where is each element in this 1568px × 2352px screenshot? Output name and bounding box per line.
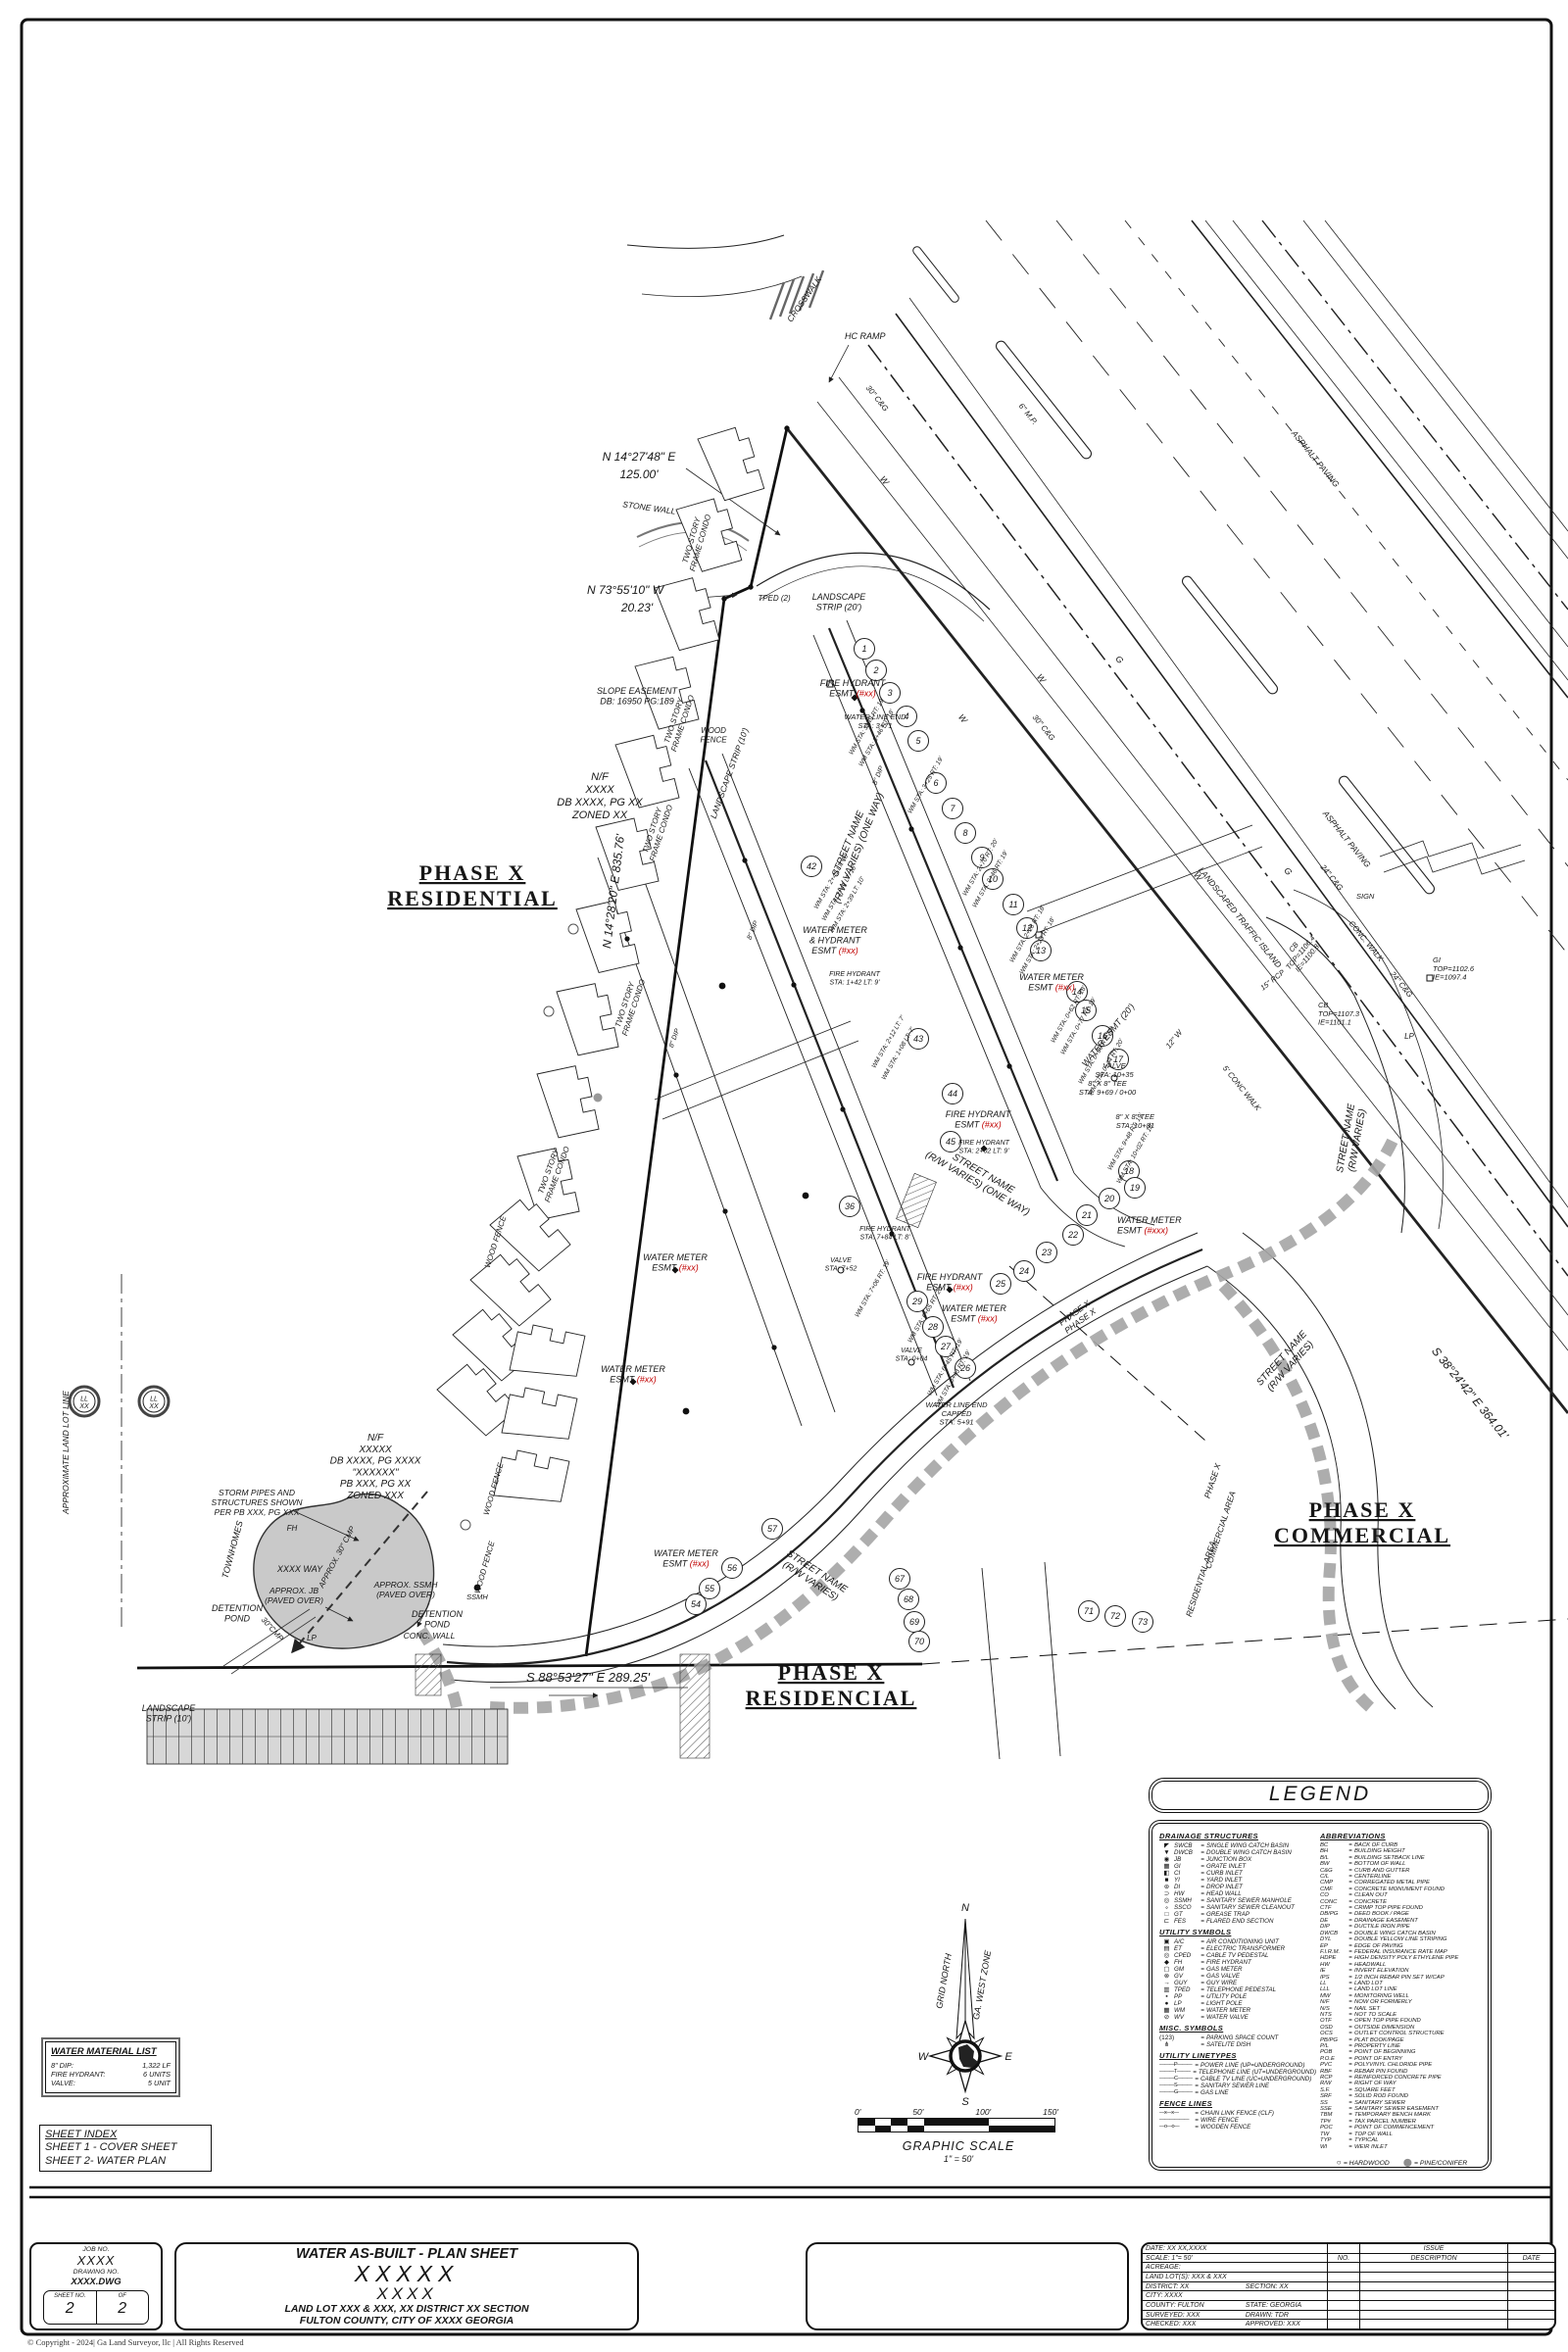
titleblock-main: WATER AS-BUILT - PLAN SHEET XXXXX XXXX L… [174, 2242, 639, 2330]
sheet-no-label: SHEET NO. [44, 2292, 96, 2300]
tree-symbol: ⬤ [1403, 2158, 1414, 2167]
legend-section-fences: FENCE LINES [1159, 2099, 1316, 2108]
legend-symbol: ▤ [1159, 1945, 1174, 1952]
legend-symbol: ◧ [1159, 1870, 1174, 1877]
svg-text:LLXX: LLXX [78, 1396, 89, 1411]
sheet-index-line: SHEET 2- WATER PLAN [45, 2155, 206, 2169]
lot-number: 67 [890, 1569, 910, 1590]
issue-no-cell [1328, 2263, 1359, 2273]
legend-equals: = [1199, 2041, 1206, 2048]
legend-equals: = [1199, 1986, 1206, 1993]
plan-annotation: RESIDENTIAL AREA [1184, 1540, 1218, 1618]
plan-annotation: SIGN [1356, 892, 1375, 901]
issue-date-cell [1508, 2291, 1554, 2301]
legend-fence-row: ——————=WIRE FENCE [1159, 2117, 1316, 2124]
svg-text:3: 3 [887, 688, 892, 698]
legend-desc: YARD INLET [1206, 1877, 1316, 1884]
plan-annotation: FIRE HYDRANTSTA: 7+84 LT: 8' [859, 1226, 910, 1241]
svg-text:20: 20 [1103, 1194, 1114, 1203]
issue-no-cell [1328, 2273, 1359, 2282]
building-footprint [557, 982, 618, 1057]
svg-text:57: 57 [767, 1524, 778, 1534]
legend-desc: GAS VALVE [1206, 1973, 1316, 1980]
issue-desc-cell: ISSUE [1360, 2244, 1507, 2254]
legend-fence-glyph: —————— [1159, 2117, 1193, 2124]
legend-abbreviation-row: WI=WEIR INLET [1320, 2144, 1484, 2150]
legend-abbreviations-column: ABBREVIATIONS BC=BACK OF CURBBH=BUILDING… [1316, 1829, 1484, 2165]
legend-linetype-row: ———T———=TELEPHONE LINE (UT=UNDERGROUND) [1159, 2069, 1316, 2076]
plan-annotation: 8" DIP [668, 1028, 682, 1049]
water-material-list: WATER MATERIAL LIST 8" DIP:1,322 LFFIRE … [41, 2037, 180, 2097]
legend-linetype-glyph: ———C——— [1159, 2076, 1193, 2082]
info-label: ACREAGE: [1146, 2264, 1181, 2271]
svg-text:24: 24 [1018, 1266, 1029, 1276]
legend-fence-row: —x—x—=CHAIN LINK FENCE (CLF) [1159, 2110, 1316, 2117]
scale-tick-150: 150' [1043, 2107, 1058, 2117]
legend-desc: WATER VALVE [1206, 2014, 1316, 2021]
material-name: VALVE: [51, 2079, 75, 2087]
legend-fence-glyph: —x—x— [1159, 2110, 1193, 2117]
land-lot-markers-layer: LLXXLLXX [70, 1387, 169, 1416]
bottom-rules [29, 2187, 1551, 2197]
legend-equals: = [1199, 1849, 1206, 1856]
legend-section-linetypes: UTILITY LINETYPES [1159, 2051, 1316, 2060]
sheet-index: SHEET INDEX SHEET 1 - COVER SHEETSHEET 2… [39, 2125, 212, 2172]
issue-no-cell [1328, 2244, 1359, 2254]
issue-desc-cell [1360, 2291, 1507, 2301]
building-footprint [698, 424, 764, 503]
svg-text:23: 23 [1041, 1248, 1052, 1257]
legend-desc: HEAD WALL [1206, 1890, 1316, 1897]
scale-tick-50: 50' [912, 2107, 923, 2117]
plan-annotation: 12" W [1164, 1027, 1185, 1051]
plan-annotation: CONC. WALK [1347, 919, 1386, 963]
legend-misc-row: ⋔=SATELITE DISH [1159, 2041, 1316, 2048]
legend-desc: TELEPHONE LINE (UT=UNDERGROUND) [1199, 2069, 1316, 2076]
lot-number: 70 [909, 1632, 930, 1652]
tree-symbol: ○ [1337, 2158, 1344, 2167]
legend-equals: = [1199, 1863, 1206, 1870]
legend-section-drainage: DRAINAGE STRUCTURES [1159, 1832, 1316, 1840]
water-material-row: VALVE:5 UNIT [51, 2079, 171, 2087]
issue-date-cell [1508, 2273, 1554, 2282]
legend-abbr: LP [1174, 2000, 1199, 2007]
legend-utility-row: ⊗GV=GAS VALVE [1159, 1973, 1316, 1980]
plan-annotation: LANDSCAPESTRIP (10') [142, 1703, 197, 1724]
plan-annotation: G [1282, 865, 1294, 877]
legend-equals: = [1199, 1897, 1206, 1904]
legend-desc: UTILITY POLE [1206, 1993, 1316, 2000]
legend-abbr: SSMH [1174, 1897, 1199, 1904]
scale-tick-100: 100' [975, 2107, 991, 2117]
legend-equals: = [1199, 1904, 1206, 1911]
material-qty: 5 UNIT [148, 2079, 171, 2087]
building-footprint [655, 575, 719, 653]
svg-text:45: 45 [946, 1137, 956, 1147]
svg-text:22: 22 [1067, 1230, 1078, 1240]
issue-no-cell [1328, 2282, 1359, 2292]
plan-annotation: STORM PIPES ANDSTRUCTURES SHOWNPER PB XX… [211, 1488, 303, 1517]
lot-number: 7 [943, 799, 963, 819]
issue-no-cell [1328, 2311, 1359, 2321]
drawing-no-label: DRAWING NO. [31, 2269, 161, 2277]
legend-symbol: ◆ [1159, 1959, 1174, 1966]
legend-equals: = [1199, 1870, 1206, 1877]
water-material-row: FIRE HYDRANT:6 UNITS [51, 2070, 171, 2079]
lot-number: 24 [1014, 1261, 1035, 1282]
lot-number: 1 [855, 639, 875, 660]
legend-desc: ELECTRIC TRANSFORMER [1206, 1945, 1316, 1952]
plan-annotation: 30" C&G [864, 383, 891, 413]
legend-equals: = [1199, 1993, 1206, 2000]
plan-annotation: 8" DIP [747, 920, 760, 941]
legend-abbr: CI [1174, 1870, 1199, 1877]
legend-equals: = [1199, 1842, 1206, 1849]
graphic-scale-title: GRAPHIC SCALE [855, 2139, 1062, 2153]
legend-linetype-row: ———C———=CABLE TV LINE (UC=UNDERGROUND) [1159, 2076, 1316, 2082]
legend-equals: = [1199, 1966, 1206, 1973]
legend-desc: CABLE TV PEDESTAL [1206, 1952, 1316, 1959]
info-label-2: DRAWN: TDR [1246, 2312, 1289, 2319]
info-row: DATE: XX XX,XXXX [1143, 2244, 1327, 2254]
legend-drainage-row: ◎SSMH=SANITARY SEWER MANHOLE [1159, 1897, 1316, 1904]
location-line-1: LAND LOT XXX & XXX, XX DISTRICT XX SECTI… [176, 2303, 637, 2315]
plan-annotation: FH [287, 1524, 298, 1533]
plan-annotation: ASPHALT PAVING [1289, 427, 1342, 489]
legend-utility-row: ▥TPED=TELEPHONE PEDESTAL [1159, 1986, 1316, 1993]
graphic-scale-bar [857, 2118, 1055, 2132]
svg-text:29: 29 [911, 1297, 922, 1306]
legend-equals: = [1193, 2124, 1200, 2131]
svg-text:1: 1 [861, 644, 866, 654]
land-lot-marker: LLXX [139, 1387, 169, 1416]
lot-number: 44 [943, 1084, 963, 1104]
legend-symbol: ⊛ [1159, 1884, 1174, 1890]
lot-number: 25 [991, 1274, 1011, 1295]
legend-equals: = [1193, 2110, 1200, 2117]
legend-equals: = [1199, 1884, 1206, 1890]
phase-label: PHASE XRESIDENCIAL [746, 1660, 917, 1710]
legend-equals: = [1199, 2000, 1206, 2007]
svg-text:56: 56 [727, 1563, 737, 1573]
legend-equals: = [1347, 2144, 1354, 2150]
property-boundary [122, 426, 1568, 1668]
material-qty: 1,322 LF [142, 2061, 171, 2070]
plan-annotation: 8" DIP [872, 765, 886, 786]
north-letter-e: E [1004, 2051, 1012, 2063]
svg-text:67: 67 [895, 1574, 906, 1584]
legend-desc: GRATE INLET [1206, 1863, 1316, 1870]
building-footprint [537, 1064, 599, 1140]
svg-text:21: 21 [1081, 1210, 1092, 1220]
legend-equals: = [1199, 2007, 1206, 2014]
legend-utility-row: ⊘WV=WATER VALVE [1159, 2014, 1316, 2021]
legend-symbol: ◎ [1159, 1897, 1174, 1904]
lot-number: 42 [802, 857, 822, 877]
info-label-2: STATE: GEORGIA [1246, 2302, 1301, 2309]
legend: LEGEND DRAINAGE STRUCTURES ◤SWCB=SINGLE … [1149, 1778, 1492, 2176]
legend-equals: = [1193, 2089, 1200, 2096]
issue-desc-cell: DESCRIPTION [1360, 2254, 1507, 2264]
legend-utility-row: ◎CPED=CABLE TV PEDESTAL [1159, 1952, 1316, 1959]
svg-text:27: 27 [940, 1342, 952, 1351]
legend-equals: = [1199, 1911, 1206, 1918]
plan-annotation: VALVESTA: 7+52 [825, 1257, 857, 1272]
svg-text:11: 11 [1008, 900, 1017, 909]
legend-utility-row: ▤ET=ELECTRIC TRANSFORMER [1159, 1945, 1316, 1952]
plan-annotation: WATER METERESMT (#xx) [601, 1364, 665, 1385]
plan-annotation: 15" RCP [1258, 968, 1286, 993]
titleblock-job: JOB NO. XXXX DRAWING NO. XXXX.DWG SHEET … [29, 2242, 163, 2330]
legend-fence-row: —o—o—=WOODEN FENCE [1159, 2124, 1316, 2131]
legend-utility-row: ●LP=LIGHT POLE [1159, 2000, 1316, 2007]
tree-label: = PINE/CONIFER [1414, 2160, 1467, 2167]
svg-text:73: 73 [1138, 1617, 1148, 1627]
lot-number: 55 [700, 1579, 720, 1599]
north-letter-w: W [918, 2051, 930, 2063]
plan-annotation: APPROX. SSMH(PAVED OVER) [373, 1580, 439, 1599]
plan-annotation: N/FXXXXXDB XXXX, PG XXXX"XXXXXX"PB XXX, … [330, 1433, 421, 1501]
annotations-layer: N 14°27'48" E125.00'N 73°55'10" W20.23'N… [61, 274, 1512, 1724]
legend-symbol: ▼ [1159, 1849, 1174, 1856]
legend-abbr: WV [1174, 2014, 1199, 2021]
plan-annotation: STONE WALL [622, 499, 677, 516]
lot-number: 68 [899, 1590, 919, 1610]
svg-text:42: 42 [807, 861, 816, 871]
plan-annotation: WATER METERESMT (#xx) [942, 1303, 1006, 1324]
issue-date-cell [1508, 2263, 1554, 2273]
legend-abbr: JB [1174, 1856, 1199, 1863]
legend-abbr: YI [1174, 1877, 1199, 1884]
legend-equals: = [1193, 2076, 1200, 2082]
scale-tick-0: 0' [855, 2107, 860, 2117]
legend-drainage-row: ⊛DI=DROP INLET [1159, 1884, 1316, 1890]
legend-drainage-row: ◉JB=JUNCTION BOX [1159, 1856, 1316, 1863]
abbr-desc: WEIR INLET [1354, 2144, 1484, 2150]
plan-annotation: N 14°27'48" E [603, 450, 677, 464]
legend-symbol: ⊗ [1159, 1973, 1174, 1980]
legend-equals: = [1191, 2069, 1199, 2076]
issue-date-cell: DATE [1508, 2254, 1554, 2264]
legend-symbol: ■ [1159, 1877, 1174, 1884]
legend-utility-row: ▢GM=GAS METER [1159, 1966, 1316, 1973]
plan-annotation: FIRE HYDRANTESMT (#xx) [917, 1272, 984, 1293]
plan-annotation: LANDSCAPED TRAFFIC ISLAND [1197, 865, 1284, 970]
legend-desc: WOODEN FENCE [1200, 2124, 1316, 2131]
legend-symbol: ▦ [1159, 1863, 1174, 1870]
issue-date-cell [1508, 2311, 1554, 2321]
legend-desc: GAS LINE [1200, 2089, 1316, 2096]
legend-symbol: ⊃ [1159, 1890, 1174, 1897]
issue-no-column: NO. [1327, 2244, 1359, 2328]
legend-utility-row: ▣A/C=AIR CONDITIONING UNIT [1159, 1938, 1316, 1945]
water-material-list-title: WATER MATERIAL LIST [51, 2046, 171, 2057]
lot-number: 22 [1063, 1225, 1084, 1246]
legend-desc: CABLE TV LINE (UC=UNDERGROUND) [1200, 2076, 1316, 2082]
sheet-index-line: SHEET 1 - COVER SHEET [45, 2141, 206, 2155]
sheet-title: WATER AS-BUILT - PLAN SHEET [176, 2246, 637, 2262]
lot-number: 19 [1125, 1178, 1146, 1199]
plan-annotation: APPROX. JB(PAVED OVER) [265, 1586, 323, 1605]
issue-no-cell [1328, 2320, 1359, 2328]
graphic-scale-ratio: 1" = 50' [855, 2154, 1062, 2164]
legend-desc: PARKING SPACE COUNT [1206, 2034, 1316, 2041]
lot-number: 36 [840, 1197, 860, 1217]
info-label: DISTRICT: XX [1146, 2283, 1246, 2290]
issue-date-column: DATE [1507, 2244, 1554, 2328]
legend-symbol: ⋔ [1159, 2041, 1174, 2048]
legend-body: DRAINAGE STRUCTURES ◤SWCB=SINGLE WING CA… [1149, 1820, 1492, 2171]
legend-linetype-row: ———G———=GAS LINE [1159, 2089, 1316, 2096]
project-name-2: XXXX [176, 2285, 637, 2303]
issue-desc-cell [1360, 2320, 1507, 2328]
legend-desc: TELEPHONE PEDESTAL [1206, 1986, 1316, 1993]
legend-equals: = [1199, 2034, 1206, 2041]
job-no-value: XXXX [31, 2254, 161, 2267]
drawing-no-value: XXXX.DWG [31, 2277, 161, 2287]
plan-annotation: LP [307, 1634, 317, 1642]
issue-no-cell: NO. [1328, 2254, 1359, 2264]
legend-linetype-row: ———P———=POWER LINE (UP=UNDERGROUND) [1159, 2062, 1316, 2069]
svg-text:44: 44 [948, 1089, 957, 1099]
issue-desc-cell [1360, 2301, 1507, 2311]
legend-equals: = [1199, 1952, 1206, 1959]
building-footprint [510, 1322, 585, 1384]
titleblock-info: DATE: XX XX,XXXXSCALE: 1"= 50'ACREAGE:LA… [1141, 2242, 1556, 2330]
sheet-index-title: SHEET INDEX [45, 2129, 206, 2141]
legend-abbr: TPED [1174, 1986, 1199, 1993]
issue-desc-cell [1360, 2282, 1507, 2292]
legend-equals: = [1193, 2062, 1200, 2069]
info-label: SURVEYED: XXX [1146, 2312, 1246, 2319]
legend-symbol: ▣ [1159, 1938, 1174, 1945]
lot-number: 5 [908, 731, 929, 752]
plan-annotation: WM STA: 1+08 LT: 7' [881, 1026, 917, 1082]
legend-symbol: ◎ [1159, 1952, 1174, 1959]
legend-abbr: SSCO [1174, 1904, 1199, 1911]
plan-annotation: ASPHALT PAVING [1320, 808, 1373, 869]
issue-description-column: ISSUEDESCRIPTION [1359, 2244, 1507, 2328]
legend-desc: SATELITE DISH [1206, 2041, 1316, 2048]
legend-equals: = [1199, 1890, 1206, 1897]
svg-text:19: 19 [1130, 1183, 1140, 1193]
plan-annotation: LANDSCAPESTRIP (20') [812, 592, 867, 612]
legend-equals: = [1199, 1918, 1206, 1925]
grid-north-label: GRID NORTH [934, 1952, 954, 2009]
legend-drainage-row: □GT=GREASE TRAP [1159, 1911, 1316, 1918]
legend-utility-row: ▪PP=UTILITY POLE [1159, 1993, 1316, 2000]
plan-annotation: STREET NAME(R/W VARIES) [1254, 1329, 1318, 1396]
legend-desc: SANITARY SEWER LINE [1200, 2082, 1316, 2089]
material-qty: 6 UNITS [143, 2070, 171, 2079]
legend-desc: AIR CONDITIONING UNIT [1206, 1938, 1316, 1945]
info-row: ACREAGE: [1143, 2263, 1327, 2273]
legend-drainage-row: ⊏FES=FLARED END SECTION [1159, 1918, 1316, 1925]
plan-annotation: TPED (2) [758, 594, 791, 603]
legend-drainage-row: ⊃HW=HEAD WALL [1159, 1890, 1316, 1897]
material-name: FIRE HYDRANT: [51, 2070, 105, 2079]
info-row: SCALE: 1"= 50' [1143, 2254, 1327, 2264]
svg-text:25: 25 [995, 1279, 1006, 1289]
info-label: SCALE: 1"= 50' [1146, 2255, 1193, 2262]
legend-equals: = [1199, 1959, 1206, 1966]
legend-symbol: ▪ [1159, 1993, 1174, 2000]
plan-annotation: S 38°24'42" E 364.01' [1429, 1345, 1512, 1443]
legend-abbr: CPED [1174, 1952, 1199, 1959]
plan-annotation: TWO STORYFRAME CONDO [612, 975, 647, 1037]
legend-drainage-row: ◧CI=CURB INLET [1159, 1870, 1316, 1877]
plan-annotation: SSMH [466, 1592, 488, 1601]
building-footprint [494, 1447, 569, 1509]
legend-desc: DROP INLET [1206, 1884, 1316, 1890]
tree-label: = HARDWOOD [1344, 2160, 1390, 2167]
plan-annotation: FIRE HYDRANTSTA: 1+42 LT: 9' [829, 971, 880, 986]
lot-number: 11 [1004, 895, 1024, 915]
plan-annotation: G [1113, 654, 1125, 665]
plan-annotation: 6" M.P. [1017, 402, 1040, 426]
plan-annotation: FIRE HYDRANTESMT (#xx) [946, 1109, 1012, 1130]
svg-text:28: 28 [927, 1322, 938, 1332]
info-label: LAND LOT(S): XXX & XXX [1146, 2274, 1227, 2280]
sheet-no-value: 2 [44, 2300, 96, 2317]
legend-symbols-column: DRAINAGE STRUCTURES ◤SWCB=SINGLE WING CA… [1159, 1829, 1316, 2165]
legend-linetype-glyph: ———P——— [1159, 2062, 1193, 2069]
plan-annotation: W [1035, 672, 1049, 686]
legend-desc: CHAIN LINK FENCE (CLF) [1200, 2110, 1316, 2117]
plan-annotation: FIRE HYDRANTESMT (#xx) [820, 678, 887, 699]
plan-annotation: WATER METERESMT (#xx) [643, 1252, 708, 1273]
legend-abbr: A/C [1174, 1938, 1199, 1945]
legend-desc: GUY WIRE [1206, 1980, 1316, 1986]
svg-text:6: 6 [933, 778, 938, 788]
svg-text:71: 71 [1084, 1606, 1094, 1616]
info-label: CHECKED: XXX [1146, 2321, 1246, 2327]
issue-date-cell [1508, 2320, 1554, 2328]
legend-equals: = [1199, 1980, 1206, 1986]
plan-annotation: PHASE X [1202, 1462, 1223, 1499]
info-label: COUNTY: FULTON [1146, 2302, 1246, 2309]
plan-annotation: WATER METERESMT (#xxx) [1117, 1215, 1182, 1236]
legend-desc: WIRE FENCE [1200, 2117, 1316, 2124]
location-line-2: FULTON COUNTY, CITY OF XXXX GEORGIA [176, 2315, 637, 2327]
legend-fence-glyph: —o—o— [1159, 2124, 1193, 2131]
legend-symbol: (123) [1159, 2034, 1174, 2041]
info-row: CITY: XXXX [1143, 2291, 1327, 2301]
legend-section-abbreviations: ABBREVIATIONS [1320, 1832, 1484, 1840]
legend-section-misc: MISC. SYMBOLS [1159, 2024, 1316, 2033]
issue-date-cell [1508, 2282, 1554, 2292]
legend-title: LEGEND [1151, 1781, 1489, 1810]
issue-desc-cell [1360, 2263, 1507, 2273]
svg-text:55: 55 [705, 1584, 715, 1593]
legend-desc: LIGHT POLE [1206, 2000, 1316, 2007]
legend-equals: = [1199, 1938, 1206, 1945]
plan-annotation: 20.23' [620, 601, 654, 614]
legend-symbol: ▢ [1159, 1966, 1174, 1973]
legend-abbr: ET [1174, 1945, 1199, 1952]
legend-utility-row: ▦WM=WATER METER [1159, 2007, 1316, 2014]
graphic-scale: 0' 50' 100' 150' GRAPHIC SCALE 1" = 50' [855, 2107, 1062, 2164]
legend-desc: FLARED END SECTION [1206, 1918, 1316, 1925]
svg-text:36: 36 [845, 1201, 855, 1211]
legend-symbol: ◤ [1159, 1842, 1174, 1849]
issue-desc-cell [1360, 2311, 1507, 2321]
legend-desc: WATER METER [1206, 2007, 1316, 2014]
sheet-of-value: 2 [97, 2300, 149, 2317]
lot-number: 69 [905, 1612, 925, 1633]
plan-annotation: W [956, 712, 970, 726]
legend-equals: = [1193, 2082, 1200, 2089]
